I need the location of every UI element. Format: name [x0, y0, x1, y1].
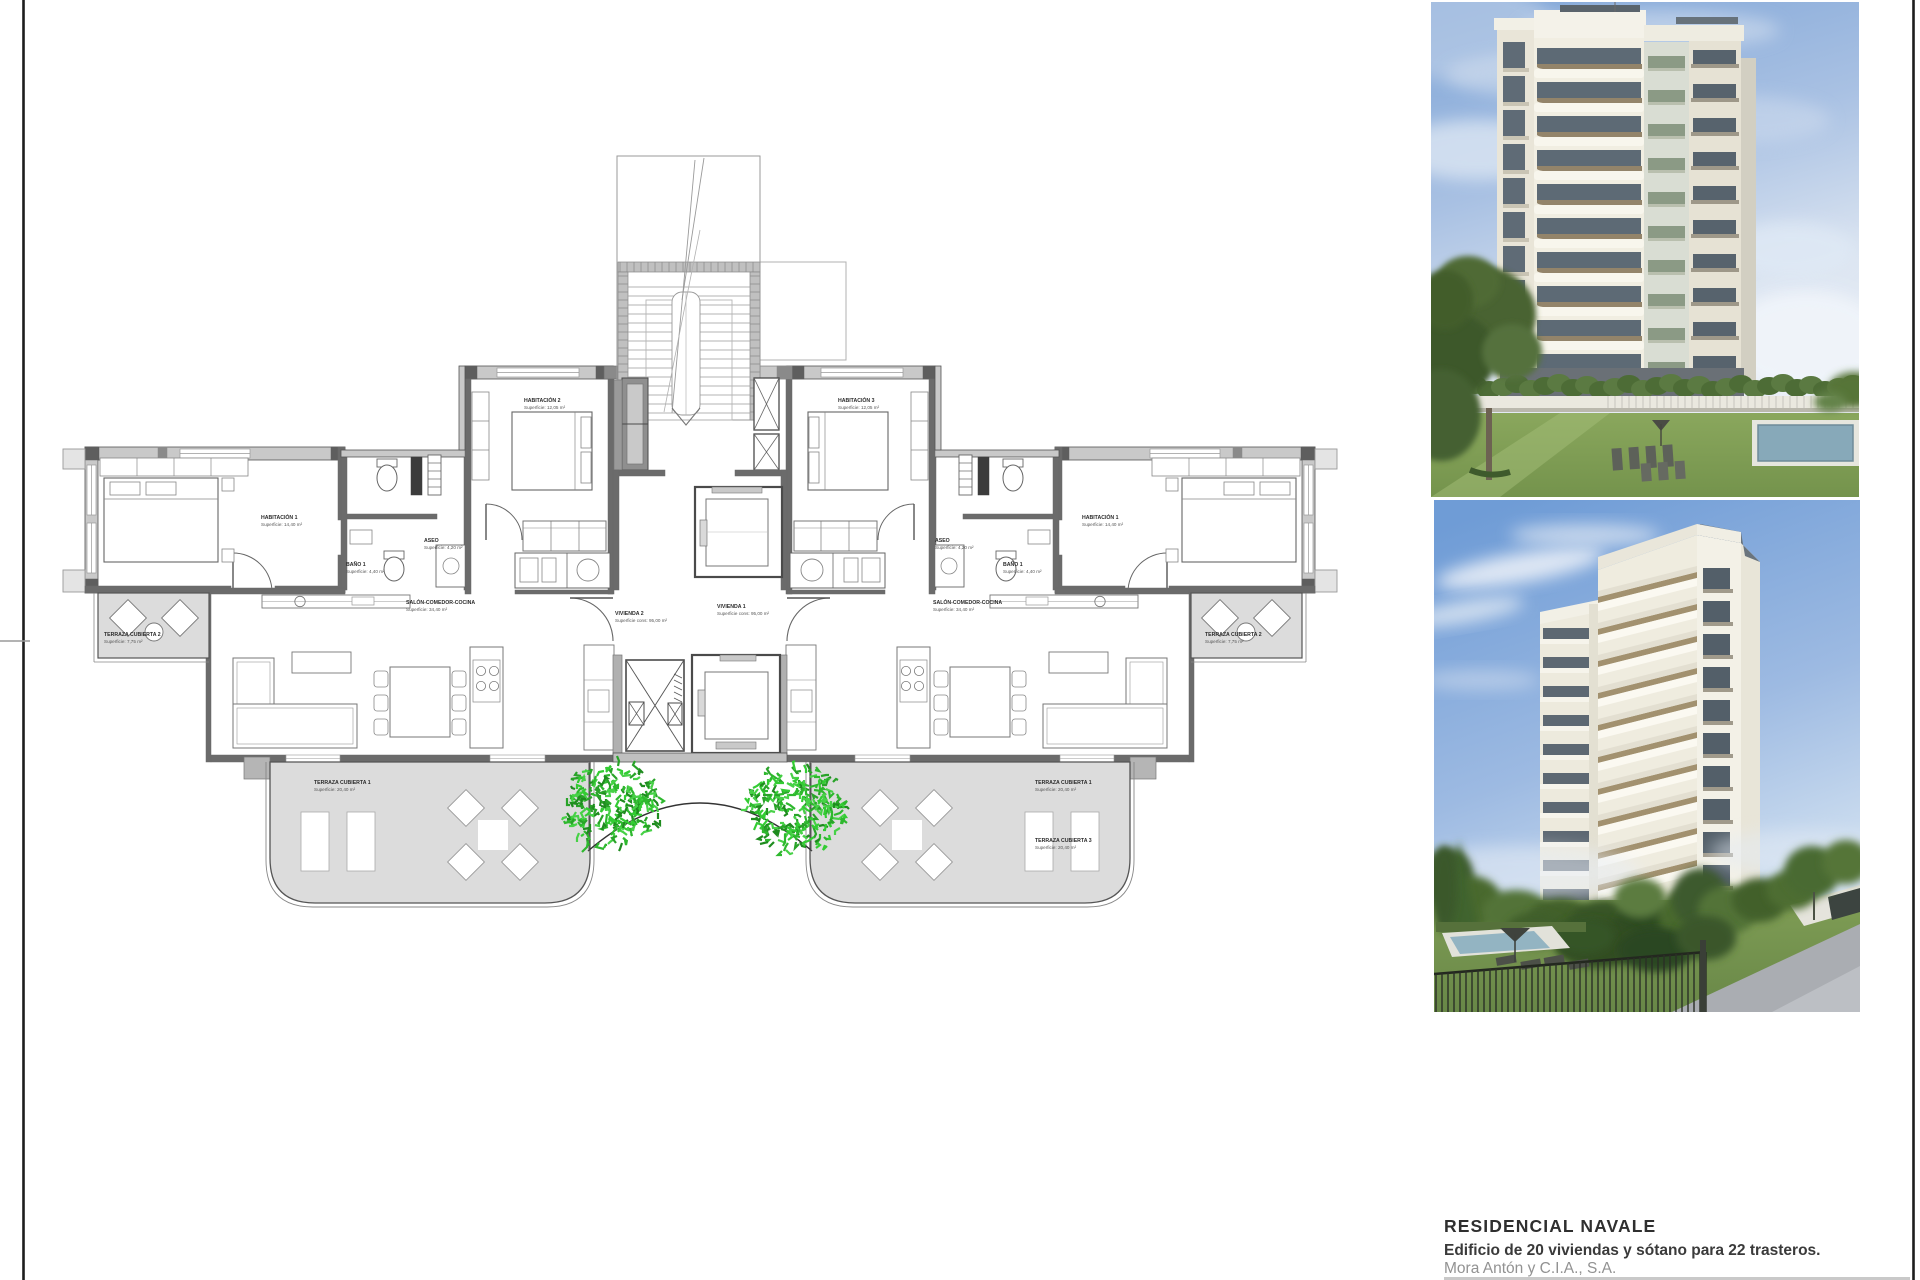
svg-text:Superficie: 4,40 m²: Superficie: 4,40 m²: [346, 569, 385, 574]
svg-text:HABITACIÓN 3: HABITACIÓN 3: [838, 396, 875, 404]
svg-text:Superficie: 12,05 m²: Superficie: 12,05 m²: [524, 405, 566, 410]
svg-text:Superficie: 20,40 m²: Superficie: 20,40 m²: [314, 787, 356, 792]
svg-text:Superficie cons: 95,00 m²: Superficie cons: 95,00 m²: [717, 611, 770, 616]
svg-text:TERRAZA CUBIERTA 2: TERRAZA CUBIERTA 2: [104, 632, 161, 638]
svg-text:RESIDENCIAL NAVALE: RESIDENCIAL NAVALE: [1444, 1216, 1656, 1236]
svg-text:Superficie: 34,40 m²: Superficie: 34,40 m²: [933, 607, 975, 612]
svg-text:Mora Antón y C.I.A., S.A.: Mora Antón y C.I.A., S.A.: [1444, 1260, 1616, 1277]
svg-text:SALÓN-COMEDOR-COCINA: SALÓN-COMEDOR-COCINA: [933, 598, 1002, 606]
svg-text:Superficie: 7,75 m²: Superficie: 7,75 m²: [1205, 639, 1244, 644]
svg-text:HABITACIÓN 2: HABITACIÓN 2: [524, 396, 561, 404]
svg-text:BAÑO 1: BAÑO 1: [1003, 561, 1023, 568]
svg-text:Superficie: 4,20 m²: Superficie: 4,20 m²: [424, 545, 463, 550]
svg-text:TERRAZA CUBIERTA 1: TERRAZA CUBIERTA 1: [314, 780, 371, 786]
svg-text:Superficie: 4,40 m²: Superficie: 4,40 m²: [1003, 569, 1042, 574]
svg-text:HABITACIÓN 1: HABITACIÓN 1: [261, 513, 298, 521]
svg-text:Superficie: 14,40 m²: Superficie: 14,40 m²: [261, 522, 303, 527]
svg-text:VIVIENDA 1: VIVIENDA 1: [717, 604, 746, 610]
svg-text:TERRAZA CUBIERTA 3: TERRAZA CUBIERTA 3: [1035, 838, 1092, 844]
svg-text:Superficie: 20,40 m²: Superficie: 20,40 m²: [1035, 787, 1077, 792]
svg-text:BAÑO 1: BAÑO 1: [346, 561, 366, 568]
svg-text:HABITACIÓN 1: HABITACIÓN 1: [1082, 513, 1119, 521]
svg-text:Superficie: 34,40 m²: Superficie: 34,40 m²: [406, 607, 448, 612]
svg-text:Superficie: 14,40 m²: Superficie: 14,40 m²: [1082, 522, 1124, 527]
svg-text:Edificio de 20 viviendas y sót: Edificio de 20 viviendas y sótano para 2…: [1444, 1242, 1820, 1259]
svg-text:TERRAZA CUBIERTA 2: TERRAZA CUBIERTA 2: [1205, 632, 1262, 638]
svg-text:ASEO: ASEO: [935, 538, 950, 544]
svg-text:Superficie: 7,75 m²: Superficie: 7,75 m²: [104, 639, 143, 644]
svg-text:Superficie: 4,20 m²: Superficie: 4,20 m²: [935, 545, 974, 550]
svg-text:Superficie: 12,05 m²: Superficie: 12,05 m²: [838, 405, 880, 410]
svg-text:Superficie: 20,40 m²: Superficie: 20,40 m²: [1035, 845, 1077, 850]
svg-text:VIVIENDA 2: VIVIENDA 2: [615, 611, 644, 617]
svg-text:ASEO: ASEO: [424, 538, 439, 544]
svg-text:SALÓN-COMEDOR-COCINA: SALÓN-COMEDOR-COCINA: [406, 598, 475, 606]
svg-text:Superficie cons: 95,00 m²: Superficie cons: 95,00 m²: [615, 618, 668, 623]
svg-text:TERRAZA CUBIERTA 1: TERRAZA CUBIERTA 1: [1035, 780, 1092, 786]
